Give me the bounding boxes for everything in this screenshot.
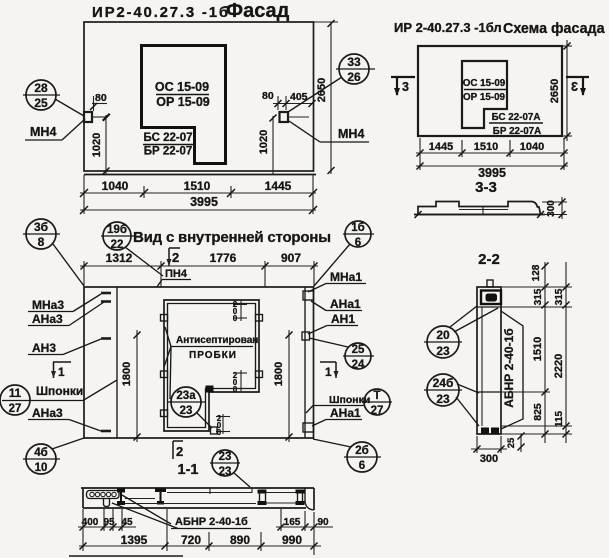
svg-text:1800: 1800 — [273, 362, 285, 386]
svg-text:45: 45 — [121, 517, 133, 528]
svg-text:АН1: АН1 — [331, 312, 355, 326]
svg-text:23а: 23а — [176, 390, 196, 402]
svg-text:23: 23 — [219, 466, 232, 478]
svg-text:2: 2 — [176, 444, 183, 459]
svg-text:1020: 1020 — [258, 130, 270, 154]
svg-text:2: 2 — [172, 250, 179, 265]
svg-text:1445: 1445 — [265, 179, 292, 193]
svg-text:АБНР 2-40-1б: АБНР 2-40-1б — [502, 328, 516, 407]
svg-text:1020: 1020 — [91, 133, 103, 157]
svg-text:1-1: 1-1 — [178, 462, 199, 478]
svg-text:0: 0 — [233, 385, 238, 394]
svg-text:БС 22-07А: БС 22-07А — [492, 112, 541, 123]
svg-text:3995: 3995 — [190, 195, 218, 209]
svg-text:6: 6 — [355, 237, 361, 249]
svg-text:33: 33 — [347, 55, 361, 69]
svg-text:1040: 1040 — [102, 179, 129, 193]
svg-text:1б: 1б — [351, 222, 365, 234]
svg-text:28: 28 — [34, 81, 48, 95]
svg-text:0: 0 — [233, 314, 238, 323]
svg-text:115: 115 — [554, 410, 565, 427]
svg-text:11: 11 — [9, 388, 22, 400]
svg-text:1510: 1510 — [532, 337, 544, 361]
svg-text:3: 3 — [402, 80, 409, 94]
svg-text:25: 25 — [506, 437, 517, 448]
svg-text:22: 22 — [111, 239, 124, 251]
svg-text:25: 25 — [34, 96, 48, 110]
svg-text:ПН4: ПН4 — [165, 268, 188, 280]
svg-text:720: 720 — [181, 533, 201, 547]
svg-text:95: 95 — [103, 517, 115, 528]
svg-text:2б: 2б — [355, 445, 369, 457]
svg-text:90: 90 — [317, 517, 329, 528]
svg-text:24: 24 — [352, 359, 365, 371]
svg-text:ОР 15-09: ОР 15-09 — [156, 95, 210, 109]
svg-text:1: 1 — [325, 365, 332, 379]
svg-text:25: 25 — [352, 344, 365, 356]
svg-text:БР 22-07А: БР 22-07А — [493, 126, 541, 137]
svg-text:Антисептирован: Антисептирован — [176, 335, 258, 346]
svg-text:1: 1 — [58, 365, 65, 379]
svg-text:80: 80 — [95, 92, 107, 104]
svg-text:АНа3: АНа3 — [32, 406, 63, 420]
svg-text:1395: 1395 — [121, 533, 148, 547]
svg-text:6: 6 — [359, 460, 365, 472]
svg-text:АНа3: АНа3 — [32, 312, 63, 326]
svg-text:ОР 15-09: ОР 15-09 — [463, 92, 505, 103]
svg-text:27: 27 — [9, 403, 22, 415]
svg-text:128: 128 — [531, 264, 542, 281]
svg-text:2220: 2220 — [553, 354, 565, 378]
svg-text:МН4: МН4 — [30, 125, 56, 139]
svg-text:0: 0 — [217, 428, 222, 437]
svg-text:3б: 3б — [34, 220, 48, 234]
svg-text:АНа1: АНа1 — [330, 297, 361, 311]
svg-text:БС 22-07: БС 22-07 — [143, 132, 192, 144]
svg-text:27: 27 — [371, 405, 384, 417]
svg-text:20: 20 — [436, 328, 450, 342]
svg-text:ИР 2-40.27.3 -1бл: ИР 2-40.27.3 -1бл — [394, 20, 502, 35]
svg-text:907: 907 — [281, 251, 301, 265]
svg-text:ИР2-40.27.3 -1б: ИР2-40.27.3 -1б — [92, 4, 230, 21]
svg-text:МН4: МН4 — [338, 127, 364, 141]
svg-text:АБНР 2-40-1б: АБНР 2-40-1б — [175, 516, 248, 528]
svg-text:26: 26 — [347, 70, 361, 84]
svg-text:1445: 1445 — [429, 141, 453, 153]
svg-text:19б: 19б — [107, 224, 127, 236]
svg-text:400: 400 — [82, 517, 99, 528]
svg-text:3995: 3995 — [478, 166, 506, 180]
svg-text:Вид с внутренней стороны: Вид с внутренней стороны — [133, 229, 331, 246]
svg-text:23: 23 — [436, 392, 450, 406]
svg-text:23: 23 — [436, 344, 450, 358]
svg-text:990: 990 — [282, 533, 302, 547]
svg-text:ОС 15-09: ОС 15-09 — [155, 80, 209, 94]
svg-text:ОС 15-09: ОС 15-09 — [463, 78, 506, 89]
svg-text:23: 23 — [219, 451, 232, 463]
svg-text:3: 3 — [571, 80, 578, 94]
svg-text:2-2: 2-2 — [478, 251, 500, 268]
svg-text:23: 23 — [180, 405, 193, 417]
svg-text:Т: Т — [373, 390, 380, 402]
svg-text:825: 825 — [532, 403, 544, 421]
svg-text:300: 300 — [546, 200, 557, 217]
svg-text:Фасад: Фасад — [226, 0, 290, 22]
svg-text:300: 300 — [480, 453, 498, 465]
svg-text:10: 10 — [35, 462, 48, 474]
svg-text:24б: 24б — [433, 376, 454, 390]
svg-text:2650: 2650 — [549, 79, 561, 103]
svg-text:1040: 1040 — [520, 141, 544, 153]
svg-text:315: 315 — [533, 288, 544, 305]
svg-text:315: 315 — [554, 288, 565, 305]
svg-text:БР 22-07: БР 22-07 — [144, 146, 193, 158]
svg-text:ПРОБКИ: ПРОБКИ — [189, 350, 237, 361]
svg-text:1510: 1510 — [184, 179, 211, 193]
svg-text:80: 80 — [262, 90, 274, 102]
svg-text:890: 890 — [230, 533, 250, 547]
svg-text:1510: 1510 — [474, 141, 498, 153]
svg-text:МНа3: МНа3 — [32, 298, 64, 312]
svg-text:МНа1: МНа1 — [330, 270, 362, 284]
svg-text:4б: 4б — [34, 447, 48, 459]
svg-text:АНа1: АНа1 — [330, 406, 361, 420]
svg-text:Схема фасада: Схема фасада — [503, 21, 606, 37]
svg-text:3-3: 3-3 — [475, 179, 497, 196]
svg-text:1800: 1800 — [121, 362, 133, 386]
svg-text:8: 8 — [38, 235, 45, 249]
svg-text:165: 165 — [284, 517, 301, 528]
svg-text:1312: 1312 — [106, 251, 133, 265]
svg-text:1776: 1776 — [210, 251, 237, 265]
svg-text:АН3: АН3 — [32, 341, 56, 355]
svg-text:Шпонки: Шпонки — [36, 384, 83, 398]
